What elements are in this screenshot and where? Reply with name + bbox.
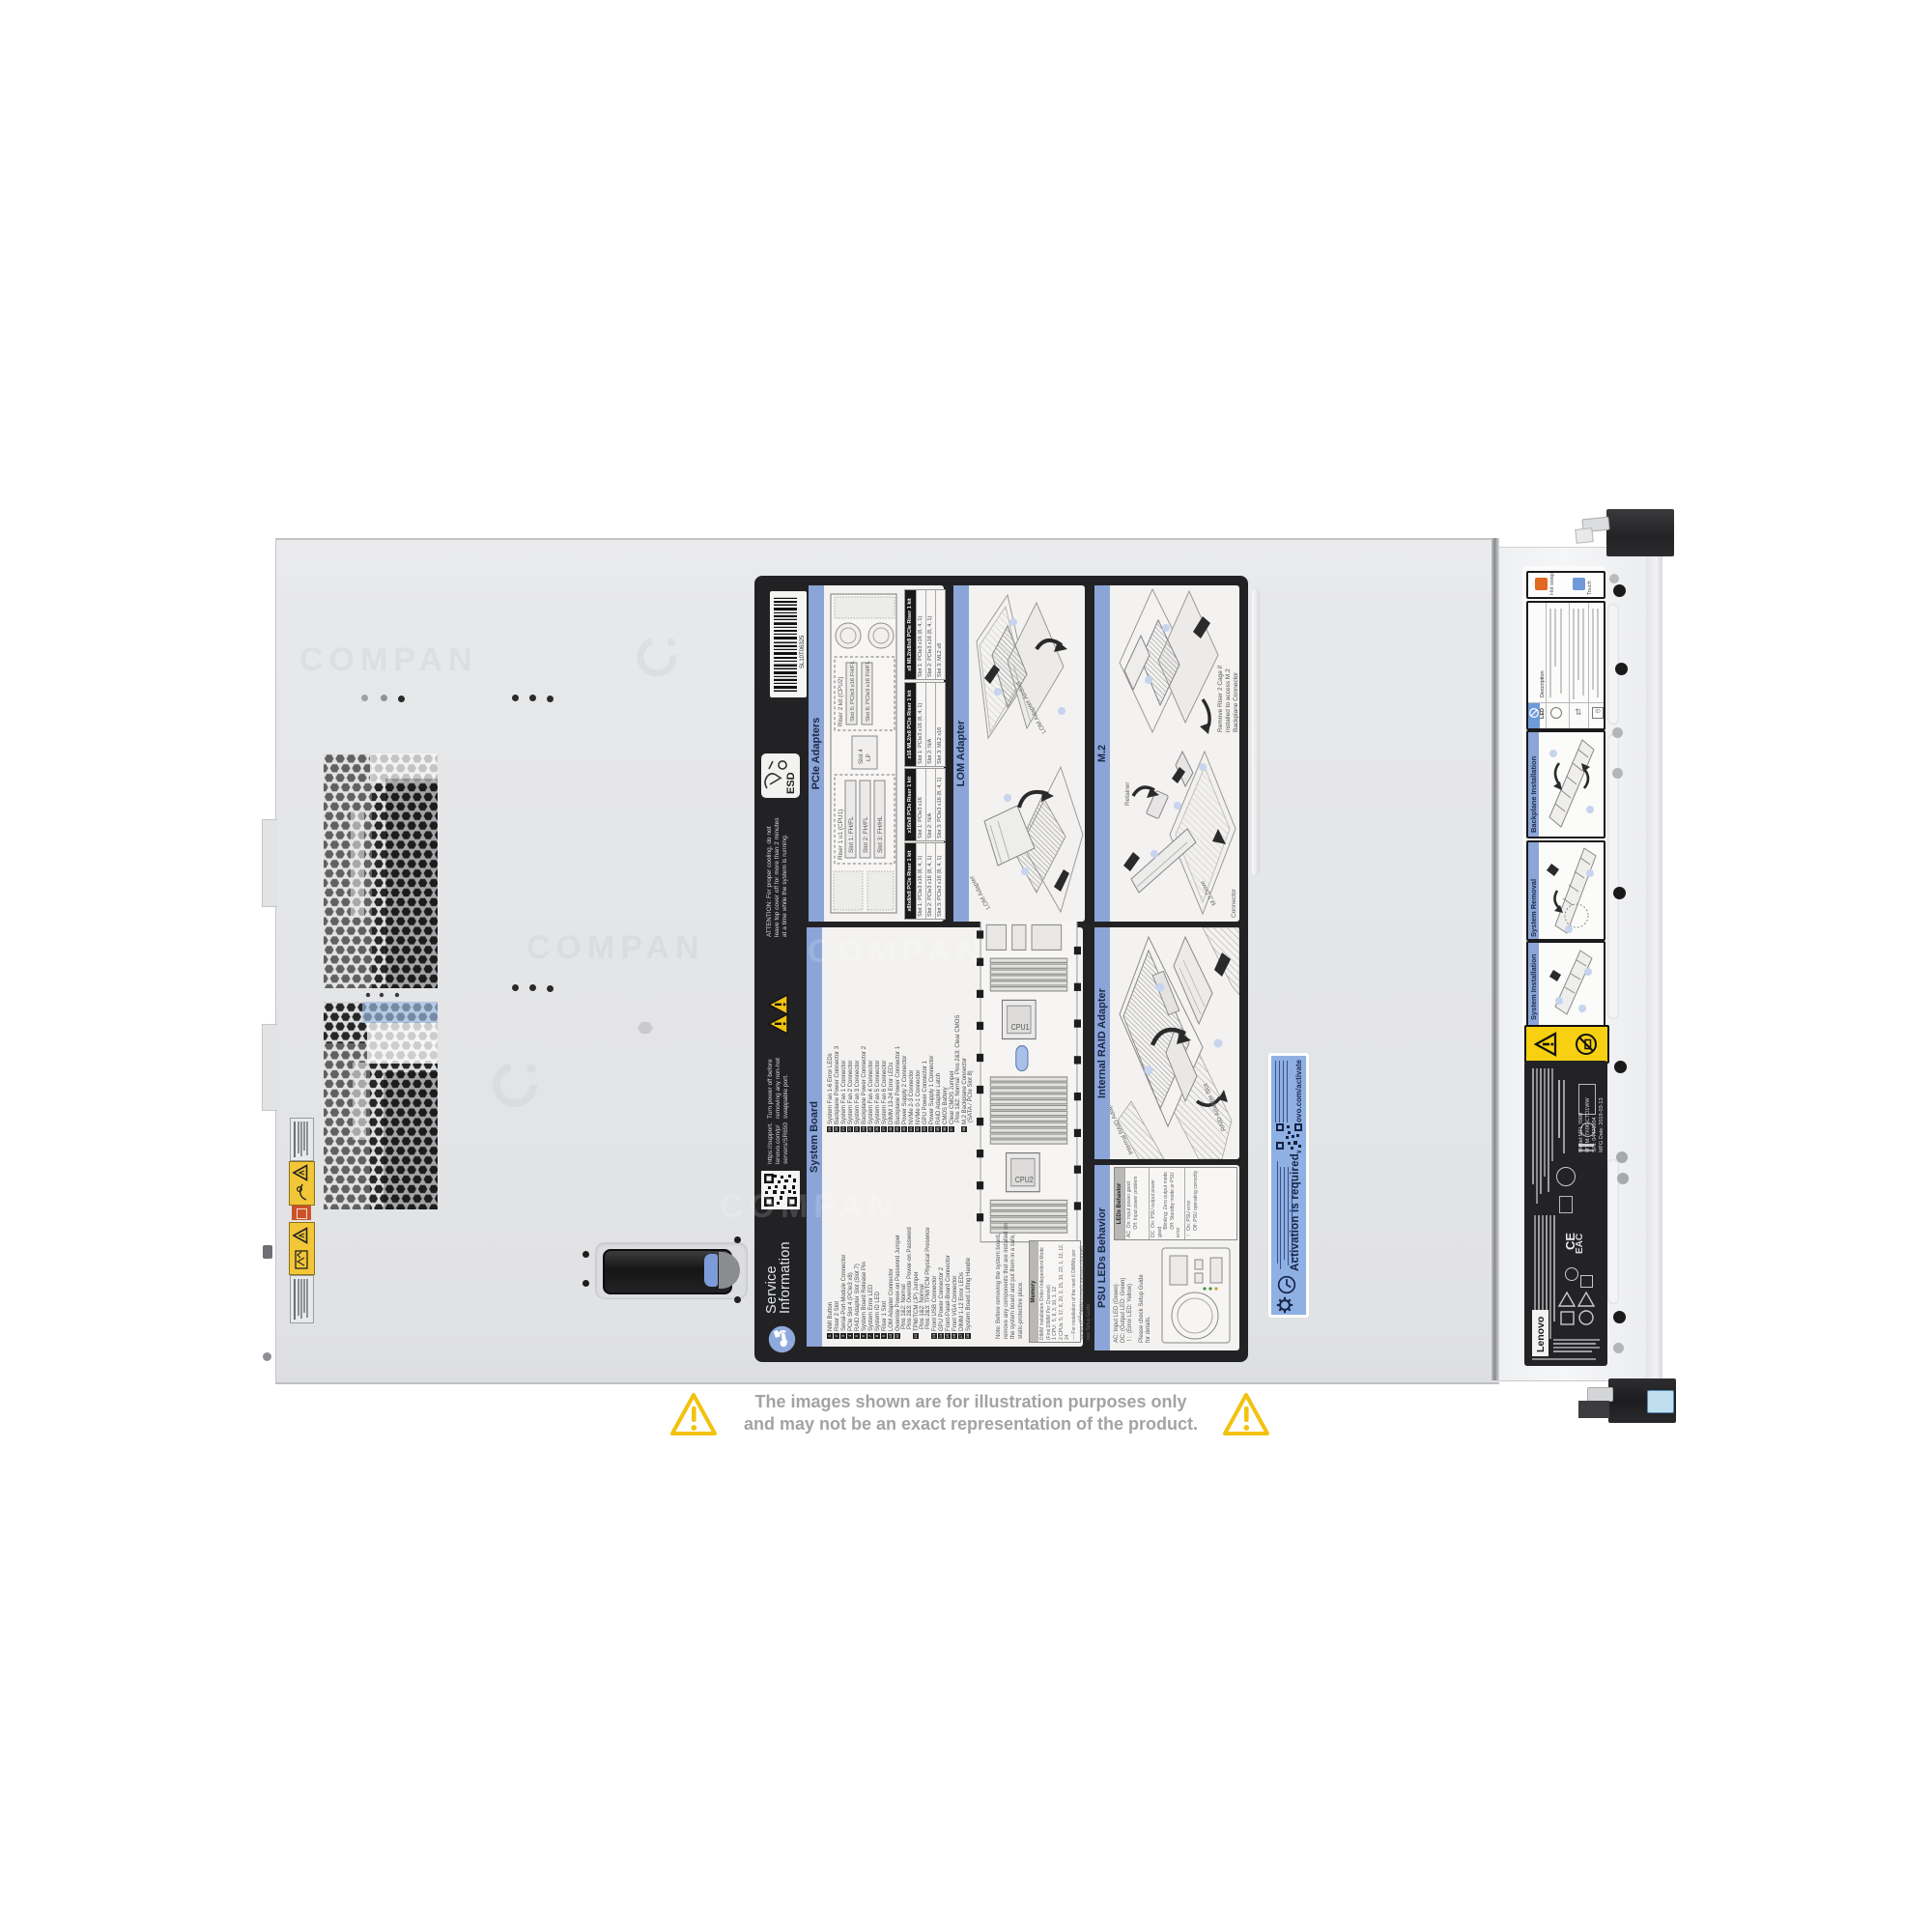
svg-text:Slot 1: FH/FL: Slot 1: FH/FL: [848, 816, 855, 853]
svg-text:Slot 4: Slot 4: [858, 749, 865, 764]
svg-text:CPU2: CPU2: [1015, 1176, 1034, 1185]
svg-text:Slot 5: PCIe3 x16 FH/FL: Slot 5: PCIe3 x16 FH/FL: [850, 660, 856, 722]
svg-text:Connector: Connector: [1231, 888, 1237, 918]
svg-text:installed to access M.2: installed to access M.2: [1225, 668, 1232, 732]
svg-text:Slot 2: FH/FL: Slot 2: FH/FL: [863, 816, 869, 853]
svg-text:ESD: ESD: [785, 772, 797, 794]
svg-text:LP: LP: [866, 753, 872, 761]
svg-text:Retainer: Retainer: [1124, 781, 1131, 806]
svg-text:LOM Adapter: LOM Adapter: [969, 874, 992, 911]
svg-text:Riser 1 u1 (CPU1): Riser 1 u1 (CPU1): [838, 810, 844, 860]
svg-text:Riser 2 kit (CPU2): Riser 2 kit (CPU2): [838, 677, 844, 727]
svg-text:Slot 3: FH/HL: Slot 3: FH/HL: [877, 815, 884, 853]
svg-text:Remove Riser 2 Cage if: Remove Riser 2 Cage if: [1217, 666, 1224, 732]
svg-text:CPU1: CPU1: [1011, 1023, 1030, 1033]
svg-text:Slot 6: PCIe3 x16 FH/FL: Slot 6: PCIe3 x16 FH/FL: [866, 660, 871, 722]
svg-text:Backplane Connector: Backplane Connector: [1233, 671, 1239, 732]
svg-text:SL10T06325: SL10T06325: [800, 635, 806, 668]
